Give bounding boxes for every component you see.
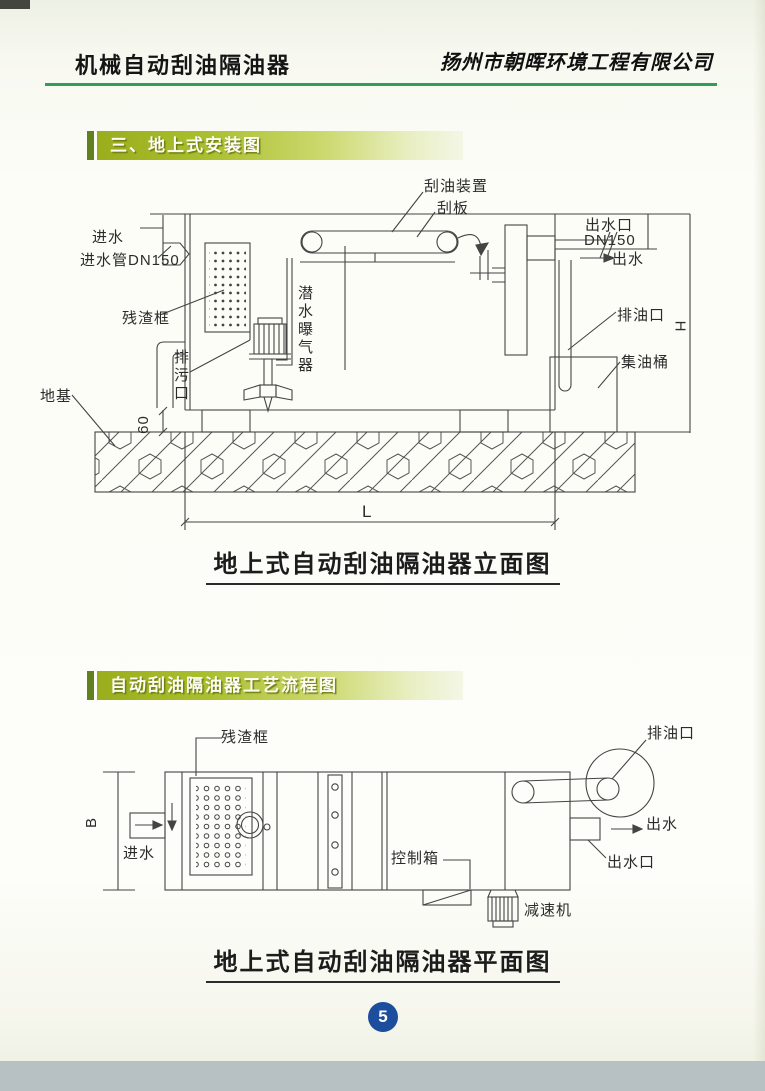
page-edge-shadow <box>753 0 765 1091</box>
section1-banner: 三、地上式安装图 <box>97 131 463 160</box>
label-inlet-flow-plan: 进水 <box>123 842 155 863</box>
label-oil-drain-plan: 排油口 <box>647 722 695 743</box>
label-dim-h: H <box>671 321 688 333</box>
label-outlet-flow: 出水 <box>612 248 644 269</box>
caption-plan: 地上式自动刮油隔油器平面图 <box>206 942 560 983</box>
label-dim-60: 60 <box>135 415 152 434</box>
header-rule <box>45 83 717 86</box>
reducer-plan <box>488 890 518 927</box>
plan-diagram <box>55 708 715 943</box>
inlet-shape-plan <box>130 803 176 838</box>
scanned-catalog-page: 机械自动刮油隔油器 扬州市朝晖环境工程有限公司 三、地上式安装图 <box>0 0 765 1091</box>
company-name: 扬州市朝晖环境工程有限公司 <box>440 46 713 75</box>
label-outlet-dn150: DN150 <box>584 232 636 249</box>
page-title: 机械自动刮油隔油器 <box>75 48 291 80</box>
banner-accent-bar-2 <box>87 671 94 700</box>
skimmer-and-barrel-plan <box>512 740 654 817</box>
label-residue-frame: 残渣框 <box>122 307 170 328</box>
label-oil-drain: 排油口 <box>617 304 665 325</box>
label-control-box: 控制箱 <box>391 847 439 868</box>
label-reducer: 减速机 <box>524 899 572 920</box>
label-inlet-pipe: 进水管DN150 <box>80 249 180 270</box>
chute-strip-plan <box>328 775 342 888</box>
label-scraper-blade: 刮板 <box>437 197 469 218</box>
label-dim-b: B <box>83 817 100 828</box>
label-dim-l: L <box>362 502 372 522</box>
banner-accent-bar-1 <box>87 131 94 160</box>
caption-elevation: 地上式自动刮油隔油器立面图 <box>206 544 560 585</box>
label-residue-frame-plan: 残渣框 <box>221 726 269 747</box>
label-inlet-flow: 进水 <box>92 226 124 247</box>
label-outlet-flow-plan: 出水 <box>646 813 678 834</box>
label-foundation: 地基 <box>40 385 72 406</box>
oil-pipe-and-barrel-shape <box>550 260 620 432</box>
label-aerator: 潜水曝气器 <box>294 285 315 375</box>
label-outlet-port-plan: 出水口 <box>607 851 655 872</box>
residue-frame-plan <box>190 738 252 875</box>
label-drain-port: 排污口 <box>170 349 191 403</box>
page-number-badge: 5 <box>368 1002 398 1032</box>
label-scraper-device: 刮油装置 <box>424 175 488 196</box>
scan-corner-mark <box>0 0 30 9</box>
scan-bottom-band <box>0 1061 765 1091</box>
label-oil-barrel: 集油桶 <box>621 351 669 372</box>
section2-banner: 自动刮油隔油器工艺流程图 <box>97 671 463 700</box>
